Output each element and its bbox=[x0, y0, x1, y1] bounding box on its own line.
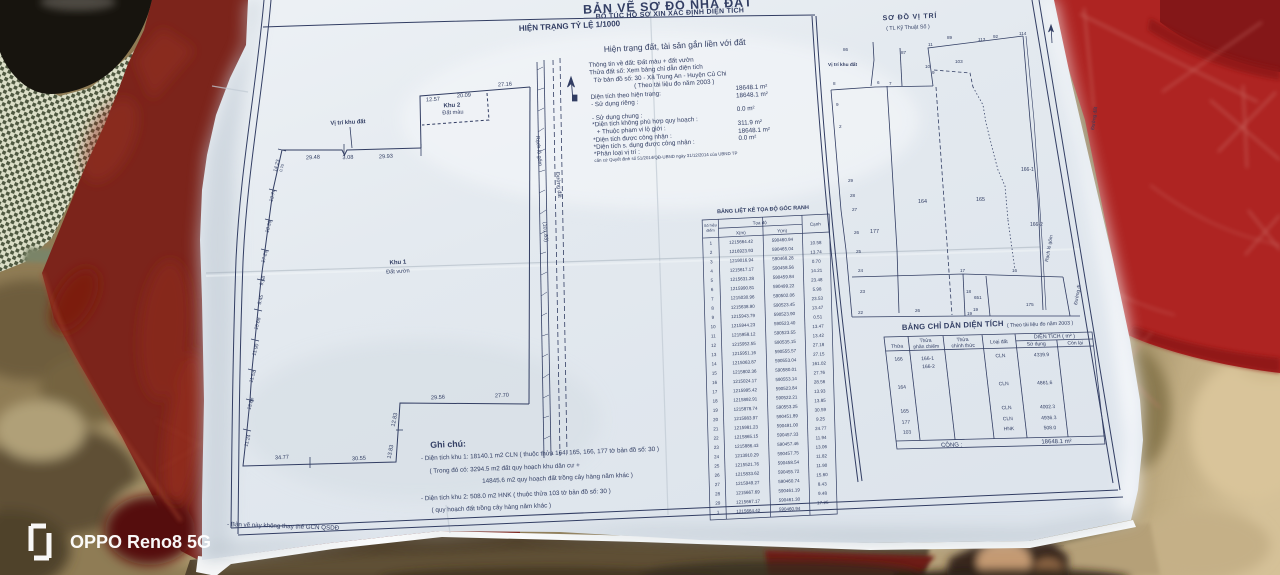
svg-text:6: 6 bbox=[877, 80, 880, 85]
svg-text:13.42: 13.42 bbox=[813, 333, 825, 339]
svg-text:19: 19 bbox=[973, 307, 979, 312]
svg-text:CLN: CLN bbox=[1003, 416, 1014, 422]
svg-text:Cạnh: Cạnh bbox=[810, 221, 821, 227]
svg-text:164: 164 bbox=[897, 385, 906, 391]
svg-text:590451.89: 590451.89 bbox=[776, 413, 798, 419]
svg-text:27.16: 27.16 bbox=[498, 82, 512, 89]
svg-text:27.70: 27.70 bbox=[495, 393, 509, 400]
svg-text:590523.90: 590523.90 bbox=[774, 311, 796, 317]
svg-text:16: 16 bbox=[712, 380, 718, 385]
svg-text:4339.9: 4339.9 bbox=[1034, 352, 1050, 358]
svg-text:590502.06: 590502.06 bbox=[773, 292, 795, 298]
svg-text:175: 175 bbox=[1026, 302, 1034, 307]
svg-text:Y(m): Y(m) bbox=[777, 228, 787, 233]
svg-text:590461.30: 590461.30 bbox=[779, 497, 801, 503]
svg-text:29: 29 bbox=[715, 500, 721, 505]
svg-text:19: 19 bbox=[713, 408, 719, 413]
svg-text:chính thức: chính thức bbox=[951, 343, 976, 350]
svg-text:23: 23 bbox=[860, 289, 866, 294]
svg-text:177: 177 bbox=[870, 229, 879, 235]
svg-text:92: 92 bbox=[993, 34, 999, 39]
svg-text:18: 18 bbox=[712, 398, 718, 403]
svg-text:590523.40: 590523.40 bbox=[774, 320, 796, 326]
svg-text:113: 113 bbox=[978, 37, 986, 42]
svg-text:13.74: 13.74 bbox=[810, 249, 822, 255]
svg-text:89: 89 bbox=[947, 35, 953, 40]
svg-text:17: 17 bbox=[712, 389, 718, 394]
svg-text:4002.3: 4002.3 bbox=[1040, 404, 1056, 410]
svg-text:14: 14 bbox=[711, 361, 717, 366]
svg-text:10: 10 bbox=[710, 324, 716, 329]
svg-text:166-1: 166-1 bbox=[1021, 167, 1034, 173]
svg-text:590465.04: 590465.04 bbox=[772, 246, 794, 252]
svg-text:26: 26 bbox=[854, 230, 860, 235]
svg-text:0.0 m²: 0.0 m² bbox=[737, 105, 755, 113]
svg-text:13.47: 13.47 bbox=[812, 305, 824, 311]
svg-text:590461.19: 590461.19 bbox=[778, 487, 800, 493]
svg-text:590522.21: 590522.21 bbox=[776, 395, 798, 401]
svg-text:13.93: 13.93 bbox=[814, 388, 826, 394]
svg-text:17: 17 bbox=[960, 268, 966, 273]
svg-text:Sử dụng: Sử dụng bbox=[1026, 340, 1046, 347]
svg-text:10: 10 bbox=[925, 64, 931, 69]
svg-text:28.56: 28.56 bbox=[814, 379, 826, 385]
svg-text:18: 18 bbox=[966, 289, 972, 294]
svg-text:590457.33: 590457.33 bbox=[777, 432, 799, 438]
svg-text:20.09: 20.09 bbox=[457, 93, 471, 100]
svg-text:12: 12 bbox=[711, 343, 717, 348]
svg-text:87: 87 bbox=[901, 50, 907, 55]
svg-text:25: 25 bbox=[714, 463, 720, 468]
svg-text:165: 165 bbox=[900, 409, 909, 415]
svg-text:651: 651 bbox=[974, 295, 982, 300]
svg-text:18648.1 m²: 18648.1 m² bbox=[1041, 439, 1072, 446]
svg-text:590553.25: 590553.25 bbox=[776, 404, 798, 410]
svg-text:164: 164 bbox=[918, 199, 927, 205]
svg-text:X(m): X(m) bbox=[736, 230, 746, 235]
svg-text:28: 28 bbox=[850, 193, 856, 198]
svg-text:590458.54: 590458.54 bbox=[778, 460, 800, 466]
svg-text:311.9 m²: 311.9 m² bbox=[737, 119, 762, 127]
svg-text:Vị trí khu đất: Vị trí khu đất bbox=[828, 61, 857, 68]
svg-text:Tọa độ: Tọa độ bbox=[753, 220, 768, 226]
svg-text:phân chiếm: phân chiếm bbox=[913, 344, 939, 351]
svg-text:11.94: 11.94 bbox=[815, 435, 827, 441]
svg-text:điểm: điểm bbox=[706, 228, 714, 232]
svg-text:Khu 1: Khu 1 bbox=[389, 260, 407, 267]
svg-text:30.55: 30.55 bbox=[352, 456, 366, 463]
svg-text:8.43: 8.43 bbox=[818, 481, 827, 486]
svg-text:4861.6: 4861.6 bbox=[1037, 380, 1053, 386]
svg-text:590468.28: 590468.28 bbox=[772, 255, 794, 261]
svg-text:590460.94: 590460.94 bbox=[779, 506, 801, 512]
svg-text:OPPO Reno8 5G: OPPO Reno8 5G bbox=[70, 532, 211, 552]
svg-text:CỘNG :: CỘNG : bbox=[941, 441, 963, 448]
svg-text:9.25: 9.25 bbox=[816, 416, 825, 421]
svg-text:9: 9 bbox=[836, 102, 839, 107]
svg-text:Đất màu: Đất màu bbox=[442, 109, 463, 116]
svg-text:Đất vườn: Đất vườn bbox=[386, 268, 410, 275]
svg-text:0.0 m²: 0.0 m² bbox=[738, 134, 756, 142]
svg-text:CLN: CLN bbox=[1001, 405, 1012, 411]
svg-text:29.93: 29.93 bbox=[379, 154, 393, 161]
svg-text:86: 86 bbox=[843, 47, 849, 52]
svg-text:27.18: 27.18 bbox=[813, 342, 825, 348]
svg-text:23.48: 23.48 bbox=[811, 277, 823, 283]
svg-text:15.60: 15.60 bbox=[816, 472, 828, 478]
svg-text:24: 24 bbox=[714, 454, 720, 459]
svg-text:26: 26 bbox=[714, 473, 720, 478]
svg-text:590491.00: 590491.00 bbox=[777, 422, 799, 428]
svg-text:590457.75: 590457.75 bbox=[777, 450, 799, 456]
svg-text:166-2: 166-2 bbox=[922, 364, 936, 370]
svg-text:Khu 2: Khu 2 bbox=[443, 103, 461, 110]
svg-text:590535.15: 590535.15 bbox=[774, 339, 796, 345]
svg-text:11: 11 bbox=[711, 333, 716, 338]
svg-text:590523.45: 590523.45 bbox=[773, 302, 795, 308]
svg-text:13.06: 13.06 bbox=[816, 444, 828, 450]
svg-text:590580.01: 590580.01 bbox=[775, 367, 797, 373]
svg-text:CLN: CLN bbox=[995, 353, 1006, 359]
svg-text:11.90: 11.90 bbox=[816, 463, 828, 469]
svg-text:13.85: 13.85 bbox=[814, 398, 826, 404]
svg-text:590460.74: 590460.74 bbox=[778, 478, 800, 484]
svg-text:23.53: 23.53 bbox=[812, 296, 824, 302]
svg-text:590553.14: 590553.14 bbox=[775, 376, 797, 382]
svg-text:7: 7 bbox=[889, 81, 892, 86]
svg-text:3.08: 3.08 bbox=[342, 155, 353, 162]
svg-text:0.70: 0.70 bbox=[812, 259, 821, 264]
svg-text:13.47: 13.47 bbox=[812, 324, 824, 330]
svg-text:9: 9 bbox=[932, 70, 935, 75]
svg-text:HNK: HNK bbox=[1003, 426, 1015, 432]
svg-text:22: 22 bbox=[858, 310, 864, 315]
svg-text:27.76: 27.76 bbox=[814, 370, 826, 376]
svg-text:24: 24 bbox=[858, 268, 864, 273]
svg-text:2: 2 bbox=[839, 124, 842, 129]
svg-text:165: 165 bbox=[976, 197, 985, 203]
svg-text:34.77: 34.77 bbox=[275, 455, 289, 462]
svg-text:590459.84: 590459.84 bbox=[773, 274, 795, 280]
svg-text:27: 27 bbox=[852, 207, 858, 212]
svg-text:508.0: 508.0 bbox=[1043, 425, 1056, 431]
svg-text:16: 16 bbox=[1012, 268, 1018, 273]
svg-text:27: 27 bbox=[715, 482, 721, 487]
svg-text:20: 20 bbox=[713, 417, 719, 422]
svg-text:Thửa: Thửa bbox=[891, 343, 904, 350]
svg-text:166-2: 166-2 bbox=[1030, 222, 1043, 228]
svg-text:103: 103 bbox=[903, 430, 912, 436]
svg-text:Số hiệu: Số hiệu bbox=[704, 223, 717, 228]
svg-text:21: 21 bbox=[713, 426, 719, 431]
svg-text:5.98: 5.98 bbox=[813, 286, 822, 291]
svg-text:10.58: 10.58 bbox=[810, 240, 822, 246]
svg-text:19: 19 bbox=[967, 311, 973, 316]
svg-text:114: 114 bbox=[1019, 31, 1027, 36]
svg-text:161.02: 161.02 bbox=[812, 361, 826, 367]
svg-text:590523.84: 590523.84 bbox=[776, 385, 798, 391]
svg-text:Còn lại: Còn lại bbox=[1067, 340, 1083, 346]
svg-text:23: 23 bbox=[714, 445, 720, 450]
svg-text:11: 11 bbox=[928, 42, 933, 47]
svg-text:30.59: 30.59 bbox=[815, 407, 827, 413]
svg-text:8: 8 bbox=[833, 81, 836, 86]
svg-text:15: 15 bbox=[712, 371, 718, 376]
svg-text:166: 166 bbox=[894, 357, 903, 363]
svg-text:17.25: 17.25 bbox=[817, 500, 829, 506]
svg-text:29: 29 bbox=[848, 178, 854, 183]
svg-text:24.77: 24.77 bbox=[815, 426, 827, 432]
svg-text:166-1: 166-1 bbox=[921, 356, 935, 362]
svg-text:Loại đất: Loại đất bbox=[990, 339, 1009, 345]
svg-text:27.15: 27.15 bbox=[813, 351, 825, 357]
svg-text:14.21: 14.21 bbox=[811, 268, 823, 274]
svg-text:0.51: 0.51 bbox=[813, 314, 822, 319]
svg-text:4936.3: 4936.3 bbox=[1041, 415, 1057, 421]
svg-text:12.57: 12.57 bbox=[426, 97, 440, 104]
svg-text:13: 13 bbox=[711, 352, 717, 357]
svg-text:590460.94: 590460.94 bbox=[772, 237, 794, 243]
svg-text:29.48: 29.48 bbox=[306, 155, 320, 162]
svg-text:26: 26 bbox=[915, 308, 921, 313]
svg-text:103: 103 bbox=[955, 59, 963, 64]
svg-text:590455.72: 590455.72 bbox=[778, 469, 800, 475]
svg-text:590499.22: 590499.22 bbox=[773, 283, 795, 289]
svg-text:11.82: 11.82 bbox=[816, 453, 828, 459]
svg-text:590555.57: 590555.57 bbox=[775, 348, 797, 354]
svg-text:177: 177 bbox=[901, 420, 910, 426]
svg-text:25: 25 bbox=[856, 249, 862, 254]
svg-text:Ghi chú:: Ghi chú: bbox=[430, 438, 466, 449]
svg-text:9.48: 9.48 bbox=[818, 491, 827, 496]
svg-text:590457.46: 590457.46 bbox=[777, 441, 799, 447]
svg-text:22: 22 bbox=[713, 435, 719, 440]
svg-text:590458.56: 590458.56 bbox=[772, 265, 794, 271]
svg-text:590523.55: 590523.55 bbox=[774, 330, 796, 336]
svg-text:CLN: CLN bbox=[998, 381, 1009, 387]
svg-text:590553.04: 590553.04 bbox=[775, 357, 797, 363]
svg-text:28: 28 bbox=[715, 491, 721, 496]
svg-text:29.56: 29.56 bbox=[431, 395, 445, 402]
